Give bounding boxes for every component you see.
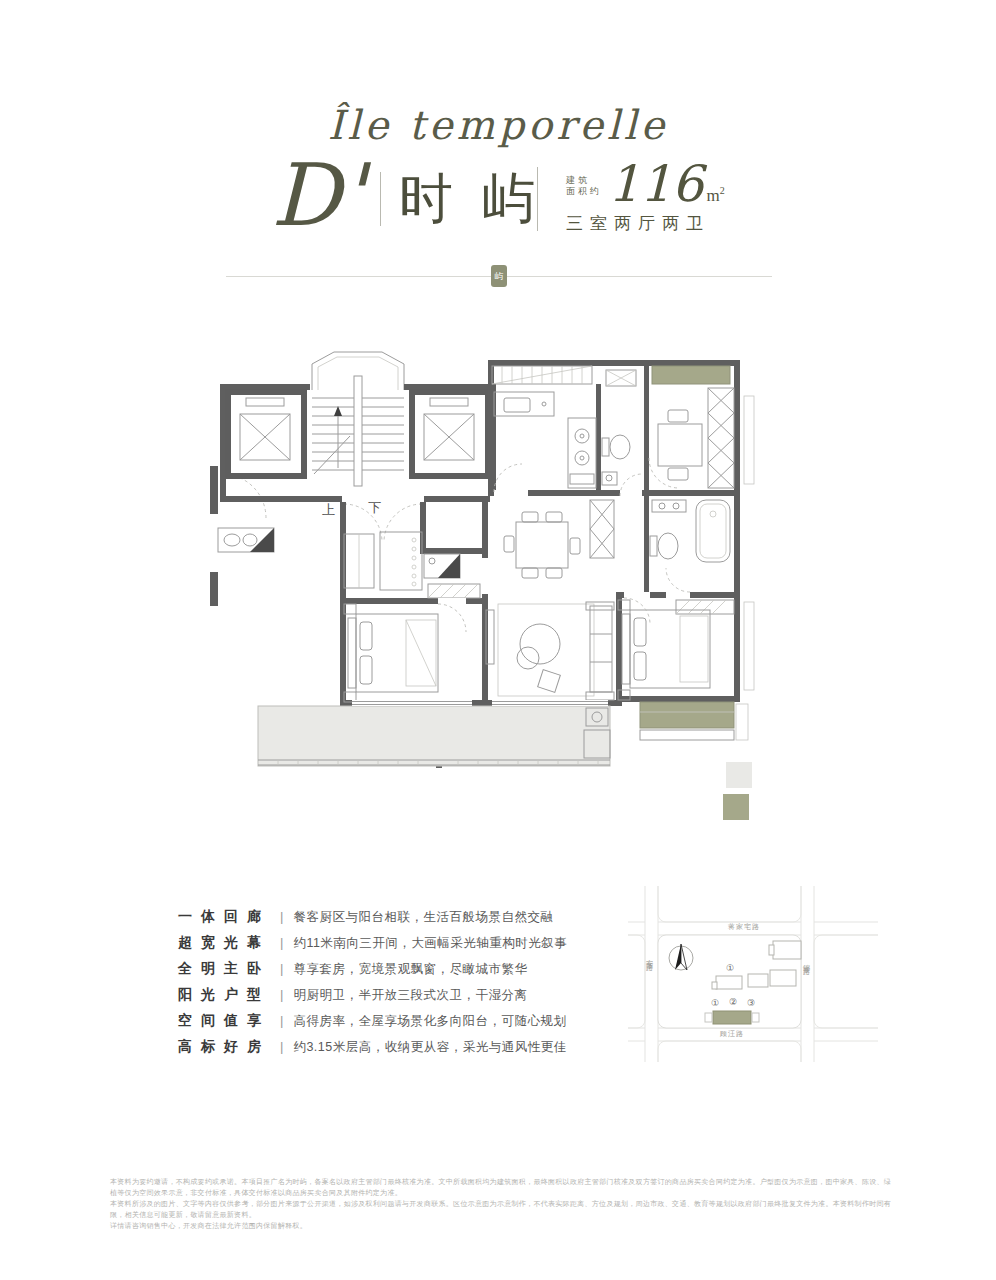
disclaimer-line-2: 本资料所涉及的图片、文字等内容仅供参考，部分图片来源于公开渠道，如涉及权利问题请…: [110, 1198, 892, 1220]
balcony: [258, 700, 610, 766]
road-label-right: 锦泰路: [803, 958, 810, 964]
feature-separator: |: [280, 935, 283, 950]
building-number-3: ③: [747, 999, 755, 1008]
bathroom-1: [602, 370, 642, 496]
feature-title: 阳光户型: [178, 986, 280, 1004]
feature-list: 一体回廊 | 餐客厨区与阳台相联，生活百般场景自然交融 超宽光幕 | 约11米南…: [178, 908, 648, 1064]
feature-separator: |: [280, 987, 283, 1002]
kitchen: [492, 366, 596, 496]
area-label-line1: 建筑: [566, 175, 602, 186]
disclaimer-line-3: 详情请咨询销售中心，开发商在法律允许范围内保留解释权。: [110, 1220, 892, 1231]
feature-row: 高标好房 | 约3.15米层高，收纳更从容，采光与通风性更佳: [178, 1038, 648, 1064]
area-value: 116: [608, 163, 703, 206]
area-block: 建筑 面积约 116 m2 三室两厅两卫: [566, 163, 725, 236]
disclaimer-text: 本资料为要约邀请，不构成要约或承诺。本项目推广名为时屿，备案名以政府主管部门最终…: [110, 1176, 892, 1231]
disclaimer-line-1: 本资料为要约邀请，不构成要约或承诺。本项目推广名为时屿，备案名以政府主管部门最终…: [110, 1176, 892, 1198]
plan-legend: [723, 762, 752, 820]
feature-row: 阳光户型 | 明厨明卫，半开放三段式次卫，干湿分离: [178, 986, 648, 1012]
elevator-left: [228, 392, 304, 476]
study-room: [649, 366, 734, 488]
road-label-left: 安华路: [646, 954, 653, 960]
legend-baywindow-swatch: [723, 794, 749, 820]
stair-up-label: 上: [322, 502, 335, 517]
bay-window-master: [640, 702, 734, 728]
feature-row: 空间值享 | 高得房率，全屋享场景化多向阳台，可随心规划: [178, 1012, 648, 1038]
feature-desc: 明厨明卫，半开放三段式次卫，干湿分离: [293, 987, 527, 1004]
feature-separator: |: [280, 1013, 283, 1028]
feature-desc: 约3.15米层高，收纳更从容，采光与通风性更佳: [293, 1039, 566, 1056]
neighbor-unit-fragment: [210, 466, 274, 606]
feature-title: 一体回廊: [178, 908, 280, 926]
unit-name: 时屿: [399, 163, 563, 236]
bay-window-study: [652, 366, 730, 384]
map-canvas: [628, 886, 878, 1062]
feature-desc: 约11米南向三开间，大画幅采光轴重构时光叙事: [293, 935, 567, 952]
section-divider: 屿: [226, 276, 772, 277]
stair-down-label: 下: [368, 500, 381, 515]
legend-balcony-swatch: [726, 762, 752, 788]
title-divider-right: [537, 167, 538, 231]
feature-desc: 高得房率，全屋享场景化多向阳台，可随心规划: [293, 1013, 566, 1030]
seal-emblem: 屿: [491, 265, 507, 287]
entry-foyer: [344, 532, 460, 590]
road-label-top: 蒋家宅路: [728, 923, 760, 930]
feature-title: 超宽光幕: [178, 934, 280, 952]
layout-text: 三室两厅两卫: [566, 212, 725, 235]
dining-area: [504, 500, 614, 578]
feature-separator: |: [280, 961, 283, 976]
feature-row: 一体回廊 | 餐客厨区与阳台相联，生活百般场景自然交融: [178, 908, 648, 934]
feature-title: 高标好房: [178, 1038, 280, 1056]
bathroom-2: [650, 500, 730, 598]
feature-separator: |: [280, 1039, 283, 1054]
area-label-line2: 面积约: [566, 186, 602, 197]
feature-row: 全明主卧 | 尊享套房，宽境景观飘窗，尽瞰城市繁华: [178, 960, 648, 986]
feature-title: 空间值享: [178, 1012, 280, 1030]
location-map: 蒋家宅路 安华路 锦泰路 顾汪路 ① ① ② ③: [628, 886, 878, 1062]
feature-desc: 餐客厨区与阳台相联，生活百般场景自然交融: [293, 909, 553, 926]
building-number-mid: ①: [726, 964, 734, 973]
feature-title: 全明主卧: [178, 960, 280, 978]
brochure-page: Île temporelle D' 时屿 建筑 面积约 116 m2 三室两厅两…: [0, 0, 996, 1280]
unit-letter: D': [271, 152, 364, 238]
neighbor-window-right: [744, 396, 754, 690]
stair-core: 上 下: [220, 352, 496, 542]
floor-plan: 上 下: [192, 348, 772, 828]
elevator-right: [412, 392, 488, 476]
area-unit: m2: [706, 185, 724, 206]
master-bedroom: [618, 592, 748, 740]
title-divider-left: [380, 172, 381, 226]
unit-title-row: D' 时屿 建筑 面积约 116 m2 三室两厅两卫: [0, 156, 996, 242]
feature-row: 超宽光幕 | 约11米南向三开间，大画幅采光轴重构时光叙事: [178, 934, 648, 960]
building-number-1: ①: [711, 999, 719, 1008]
road-label-bottom: 顾汪路: [720, 1030, 744, 1037]
site-building-highlighted: [705, 1011, 759, 1024]
project-script-title: Île temporelle: [0, 102, 996, 148]
feature-desc: 尊享套房，宽境景观飘窗，尽瞰城市繁华: [293, 961, 527, 978]
feature-separator: |: [280, 909, 283, 924]
living-room: [486, 602, 614, 700]
building-number-2: ②: [729, 998, 737, 1007]
area-label: 建筑 面积约: [566, 175, 602, 197]
